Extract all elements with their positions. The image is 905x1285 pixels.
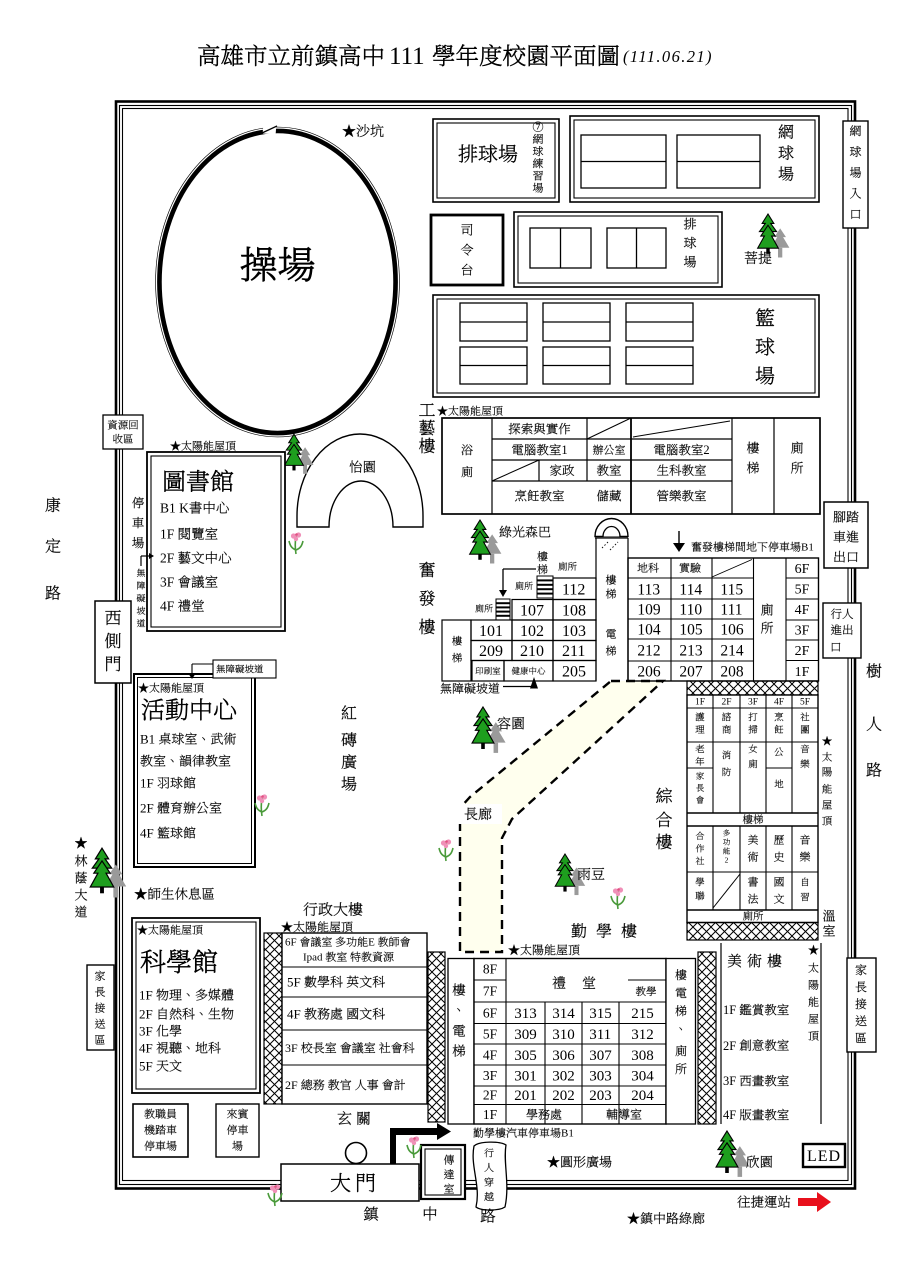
svg-text:108: 108 <box>562 602 586 619</box>
svg-text:115: 115 <box>720 581 743 598</box>
svg-text:1F: 1F <box>140 775 154 790</box>
svg-text:109: 109 <box>637 601 661 618</box>
svg-text:1F: 1F <box>160 527 175 542</box>
svg-text:201: 201 <box>514 1088 537 1104</box>
svg-text:6F: 6F <box>483 1006 498 1021</box>
svg-text:1F: 1F <box>723 1003 736 1017</box>
svg-text:311: 311 <box>589 1027 611 1043</box>
svg-text:3F: 3F <box>139 1023 153 1038</box>
svg-text:3F: 3F <box>795 623 810 638</box>
svg-text:2F: 2F <box>140 800 154 815</box>
svg-text:104: 104 <box>637 621 661 638</box>
svg-text:B1 K: B1 K <box>160 501 189 516</box>
svg-text:4F: 4F <box>140 825 154 840</box>
svg-text:B1: B1 <box>140 731 155 746</box>
svg-text:3F: 3F <box>723 1074 736 1088</box>
svg-text:105: 105 <box>679 621 703 638</box>
svg-text:1F: 1F <box>139 987 153 1002</box>
svg-text:2F: 2F <box>722 698 732 708</box>
svg-text:4F: 4F <box>774 698 784 708</box>
svg-text:310: 310 <box>552 1027 575 1043</box>
svg-text:1: 1 <box>561 443 567 457</box>
svg-text:314: 314 <box>552 1006 575 1022</box>
svg-text:LED: LED <box>807 1148 841 1165</box>
svg-text:113: 113 <box>637 581 660 598</box>
svg-text:4F: 4F <box>287 1006 301 1021</box>
svg-text:1F: 1F <box>483 1107 498 1122</box>
svg-text:204: 204 <box>631 1088 654 1104</box>
svg-text:3F: 3F <box>160 575 175 590</box>
svg-text:308: 308 <box>631 1048 654 1064</box>
svg-text:4F: 4F <box>483 1048 498 1063</box>
svg-text:112: 112 <box>562 581 585 598</box>
svg-text:B1: B1 <box>801 542 814 554</box>
svg-text:2: 2 <box>703 443 709 457</box>
svg-text:111: 111 <box>720 601 742 618</box>
svg-text:2F: 2F <box>160 551 175 566</box>
svg-text:3F: 3F <box>483 1068 498 1083</box>
svg-text:8F: 8F <box>483 962 498 977</box>
svg-text:106: 106 <box>720 621 744 638</box>
svg-text:306: 306 <box>552 1048 575 1064</box>
svg-text:107: 107 <box>520 602 544 619</box>
svg-text:2F: 2F <box>139 1006 153 1021</box>
svg-text:4F: 4F <box>795 603 810 618</box>
svg-text:110: 110 <box>679 601 702 618</box>
svg-text:305: 305 <box>514 1048 537 1064</box>
svg-text:2: 2 <box>725 856 729 865</box>
svg-text:Ipad: Ipad <box>303 952 323 964</box>
svg-text:312: 312 <box>631 1027 654 1043</box>
svg-text:205: 205 <box>562 663 586 680</box>
svg-text:102: 102 <box>520 623 544 640</box>
svg-text:E: E <box>368 937 375 949</box>
svg-text:202: 202 <box>552 1088 575 1104</box>
svg-text:313: 313 <box>514 1006 537 1022</box>
svg-text:5F: 5F <box>139 1058 153 1073</box>
svg-text:6F: 6F <box>285 937 297 949</box>
svg-text:103: 103 <box>562 623 586 640</box>
svg-text:1F: 1F <box>795 665 810 680</box>
svg-text:4F: 4F <box>723 1108 736 1122</box>
svg-text:3F: 3F <box>748 698 758 708</box>
svg-text:5F: 5F <box>800 698 810 708</box>
svg-text:301: 301 <box>514 1069 537 1085</box>
svg-text:213: 213 <box>679 642 703 659</box>
svg-text:B1: B1 <box>561 1128 574 1140</box>
svg-text:212: 212 <box>637 642 660 659</box>
svg-text:210: 210 <box>520 643 544 660</box>
svg-text:114: 114 <box>679 581 702 598</box>
svg-text:5F: 5F <box>483 1027 498 1042</box>
svg-text:5F: 5F <box>795 582 810 597</box>
svg-text:2F: 2F <box>723 1039 736 1053</box>
svg-text:4F: 4F <box>160 599 175 614</box>
svg-text:207: 207 <box>679 663 703 680</box>
svg-text:111: 111 <box>389 43 425 70</box>
svg-text:304: 304 <box>631 1069 654 1085</box>
svg-text:302: 302 <box>552 1069 575 1085</box>
svg-text:214: 214 <box>720 642 744 659</box>
svg-text:309: 309 <box>514 1027 537 1043</box>
svg-text:208: 208 <box>720 663 744 680</box>
svg-text:215: 215 <box>631 1006 654 1022</box>
svg-text:5F: 5F <box>287 974 301 989</box>
svg-text:2F: 2F <box>795 644 810 659</box>
svg-text:3F: 3F <box>285 1041 298 1055</box>
svg-text:211: 211 <box>562 643 585 660</box>
svg-text:307: 307 <box>589 1048 612 1064</box>
svg-text:1F: 1F <box>695 698 705 708</box>
svg-text:203: 203 <box>589 1088 612 1104</box>
svg-text:209: 209 <box>479 643 503 660</box>
svg-text:206: 206 <box>637 663 661 680</box>
svg-text:101: 101 <box>479 623 503 640</box>
svg-text:7F: 7F <box>483 984 498 999</box>
svg-text:2F: 2F <box>483 1088 498 1103</box>
svg-text:315: 315 <box>589 1006 612 1022</box>
svg-text:6F: 6F <box>795 562 810 577</box>
svg-text:303: 303 <box>589 1069 612 1085</box>
svg-text:2F: 2F <box>285 1078 298 1092</box>
svg-text:4F: 4F <box>139 1040 153 1055</box>
svg-text:(111.06.21): (111.06.21) <box>623 47 713 66</box>
